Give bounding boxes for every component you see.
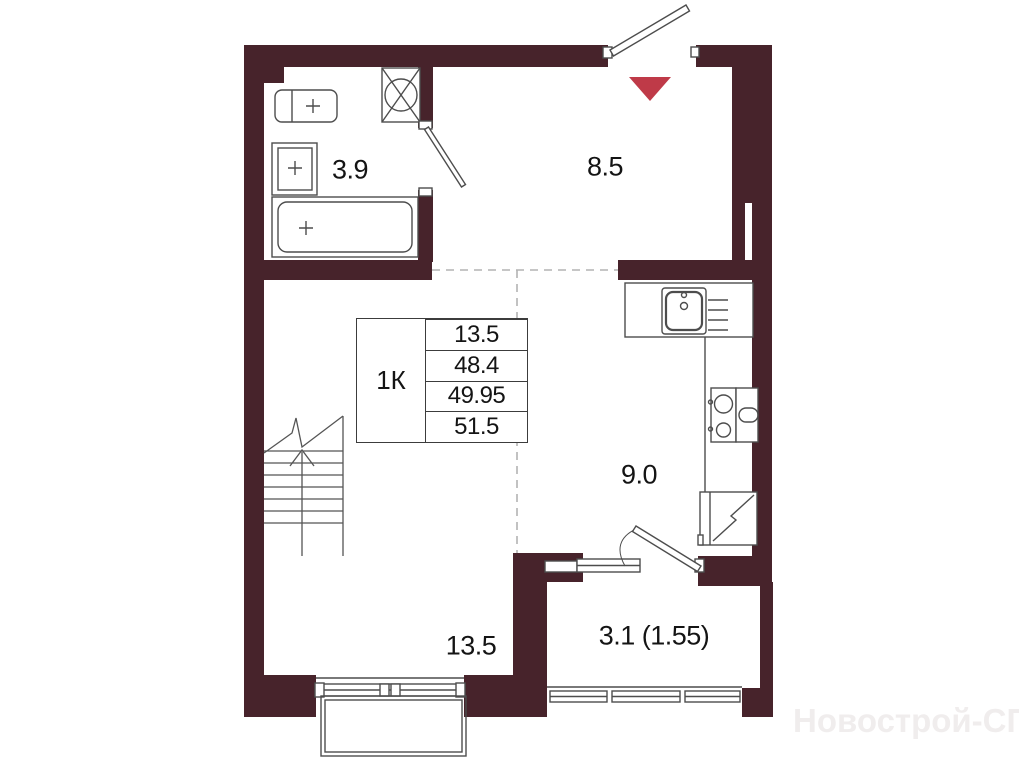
wall-living-bottom-left — [244, 675, 316, 717]
entrance-marker-icon — [629, 77, 671, 101]
stairs — [264, 416, 343, 556]
balcony-door-unit — [545, 526, 704, 572]
room-label-hallway: 8.5 — [587, 152, 623, 183]
stair-treads — [264, 451, 343, 523]
wall-top-left-pilaster — [244, 45, 284, 83]
entrance-door-jamb-right — [691, 47, 699, 57]
balcony-window-end — [545, 561, 577, 572]
ventilation-shaft-icon — [382, 68, 420, 122]
wall-living-bottom-right — [464, 675, 547, 717]
wall-bathroom-bottom — [244, 260, 432, 280]
wall-balcony-right — [760, 582, 773, 692]
area-table-value: 51.5 — [426, 411, 527, 442]
area-table-value: 49.95 — [426, 381, 527, 412]
wall-duct-stub — [732, 203, 745, 267]
wall-balcony-corner — [742, 688, 773, 717]
wall-kitchen-top — [618, 260, 754, 280]
wall-kitchen-bottom — [698, 556, 762, 586]
oven — [736, 388, 758, 442]
bathroom-door — [419, 121, 466, 196]
washbasin — [272, 143, 317, 195]
toilet — [275, 90, 337, 122]
kitchen-fixtures — [625, 283, 758, 545]
stair-up-arrow-icon — [290, 450, 314, 556]
area-table-value: 48.4 — [426, 350, 527, 381]
wall-bathroom-divider-lower — [418, 190, 433, 262]
room-label-bathroom: 3.9 — [332, 155, 368, 186]
room-label-kitchen: 9.0 — [621, 460, 657, 491]
balcony-door-leaf — [633, 526, 702, 572]
entrance-door — [603, 5, 699, 58]
room-label-balcony: 3.1 (1.55) — [599, 621, 710, 652]
stove — [709, 388, 737, 442]
room-label-living-room: 13.5 — [446, 631, 497, 662]
bathtub — [272, 197, 418, 257]
stair-break-line — [264, 416, 343, 453]
entrance-door-leaf — [610, 5, 690, 56]
living-room-window — [315, 678, 465, 697]
floor-plan-canvas: 3.9 8.5 9.0 13.5 3.1 (1.55) 1К 13.5 48.4… — [0, 0, 1019, 768]
french-balcony — [321, 696, 466, 756]
area-table: 1К 13.5 48.4 49.95 51.5 — [356, 318, 528, 443]
area-table-unit-type: 1К — [357, 319, 426, 442]
wall-left — [244, 45, 264, 717]
balcony-windows — [547, 687, 742, 702]
area-table-value: 13.5 — [426, 319, 527, 350]
refrigerator — [698, 492, 757, 545]
wall-right-upper-thick — [732, 45, 757, 203]
watermark: Новострой-СПб — [793, 702, 1019, 740]
bathroom-fixtures — [272, 68, 466, 257]
